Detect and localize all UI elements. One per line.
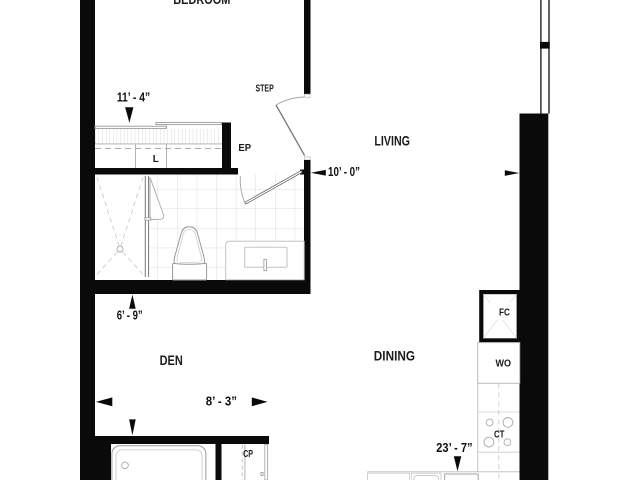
svg-text:8’ - 3”: 8’ - 3” xyxy=(206,394,237,409)
svg-text:STEP: STEP xyxy=(255,84,274,95)
svg-text:11’ - 4”: 11’ - 4” xyxy=(117,90,150,105)
svg-text:6’ - 9”: 6’ - 9” xyxy=(117,307,143,322)
svg-text:23’ - 7”: 23’ - 7” xyxy=(436,440,472,455)
svg-text:CT: CT xyxy=(494,430,505,441)
svg-text:DEN: DEN xyxy=(160,352,183,368)
svg-text:DINING: DINING xyxy=(374,348,415,364)
svg-text:CP: CP xyxy=(243,449,253,460)
svg-text:LIVING: LIVING xyxy=(374,133,410,149)
svg-text:FC: FC xyxy=(499,308,510,319)
svg-text:L: L xyxy=(153,154,159,165)
svg-text:BEDROOM: BEDROOM xyxy=(173,0,230,7)
svg-text:10’ - 0”: 10’ - 0” xyxy=(328,164,360,179)
svg-text:WO: WO xyxy=(496,359,512,370)
svg-text:EP: EP xyxy=(238,143,251,154)
